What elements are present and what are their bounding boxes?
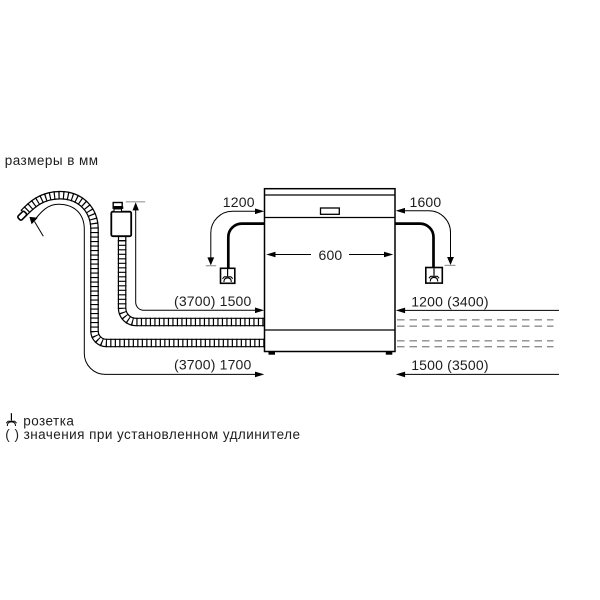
svg-text:1200: 1200 — [223, 194, 255, 210]
svg-text:1500 (3500): 1500 (3500) — [411, 357, 488, 373]
svg-text:( ) значения при установленном: ( ) значения при установленном удлинител… — [5, 427, 300, 442]
svg-text:(3700) 1700: (3700) 1700 — [174, 357, 252, 373]
svg-text:1200 (3400): 1200 (3400) — [411, 293, 488, 309]
svg-text:1600: 1600 — [410, 194, 442, 210]
svg-text:размеры в мм: размеры в мм — [5, 153, 99, 168]
svg-text:(3700) 1500: (3700) 1500 — [174, 293, 252, 309]
svg-text:600: 600 — [319, 247, 343, 263]
